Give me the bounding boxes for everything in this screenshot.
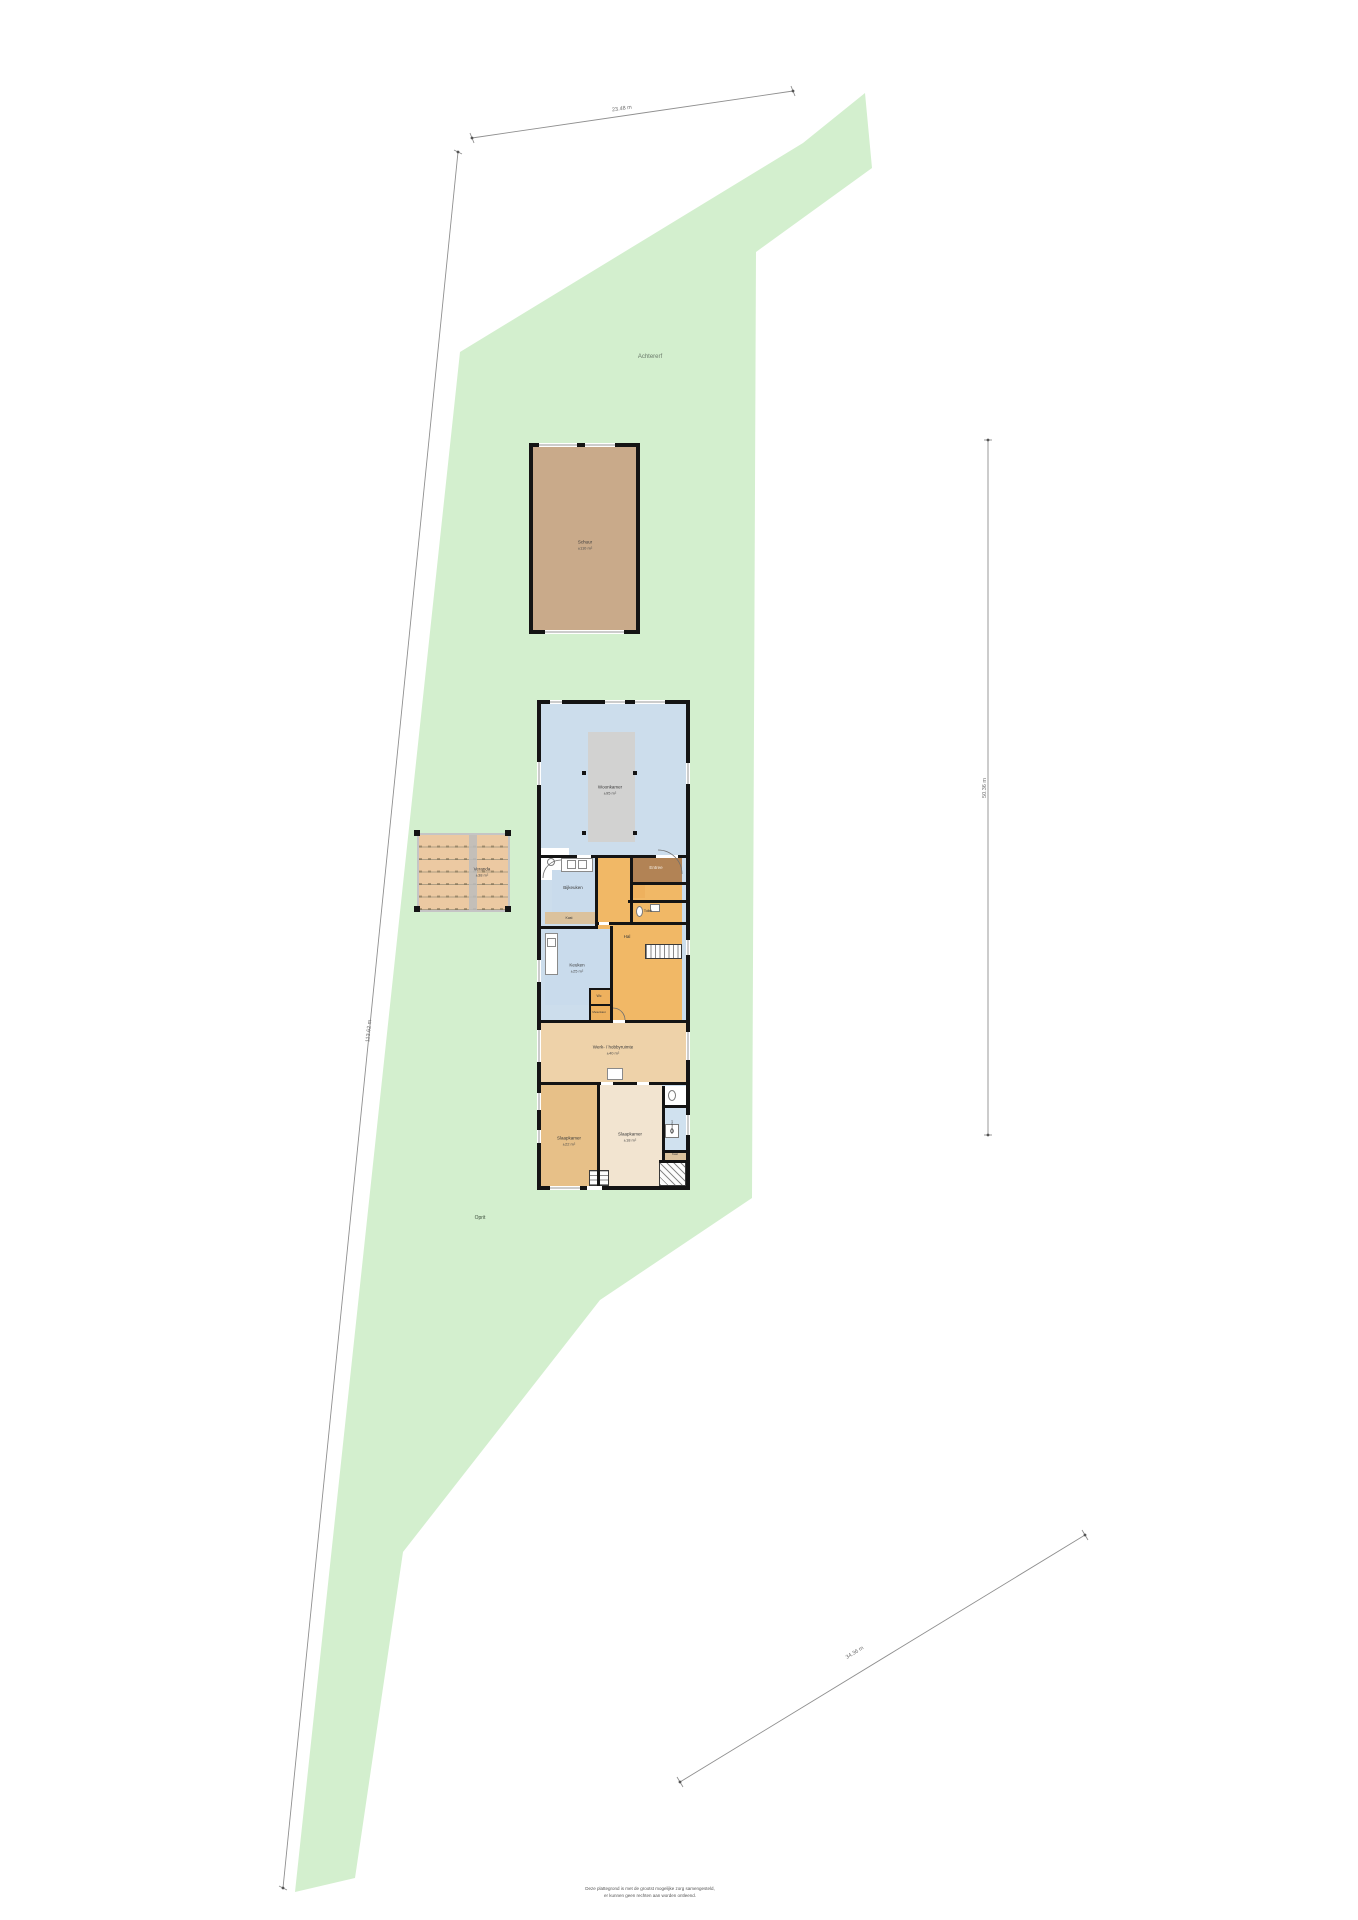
barn-window bbox=[585, 443, 615, 447]
label-slaapkamer1: Slaapkamer ±22 m² bbox=[557, 1136, 581, 1147]
label-keuken: Keuken ±25 m² bbox=[569, 963, 584, 974]
barn-area: ±110 m² bbox=[578, 545, 592, 550]
label-woonkamer: Woonkamer ±95 m² bbox=[598, 785, 622, 796]
deck-post bbox=[505, 906, 511, 912]
label-entree: Entree bbox=[649, 865, 662, 871]
barn-wall-left bbox=[529, 443, 533, 634]
label-bijkeuken: Bijkeuken bbox=[563, 885, 583, 891]
house: Woonkamer ±95 m² Bijkeuken Kast Entree T… bbox=[537, 700, 690, 1190]
veranda-area: ±38 m² bbox=[474, 872, 491, 877]
dimension-label-right: 50.36 m bbox=[982, 778, 988, 798]
dimension-line-bottom-right bbox=[677, 1530, 1088, 1787]
barn-window bbox=[539, 443, 577, 447]
veranda-deck: Veranda ±38 m² bbox=[417, 833, 510, 912]
deck-plank-dashes bbox=[419, 835, 508, 910]
site-plan-canvas: 23.48 m 50.36 m 113.62 m 34.36 m Achtere… bbox=[0, 0, 1358, 1920]
label-hal: Hal bbox=[624, 934, 631, 940]
label-meterkast: Meterkast bbox=[592, 1011, 605, 1015]
dimension-line-top bbox=[470, 86, 795, 143]
label-kast2: Kast bbox=[672, 1153, 678, 1157]
label-werkruimte: Werk- / hobbyruimte ±40 m² bbox=[593, 1045, 633, 1056]
disclaimer-line1: Deze plattegrond is met de grootst mogel… bbox=[585, 1886, 715, 1893]
barn: Schuur ±110 m² bbox=[529, 443, 640, 634]
label-slaapkamer2: Slaapkamer ±18 m² bbox=[618, 1132, 642, 1143]
label-kast1: Kast bbox=[565, 916, 572, 920]
barn-wall-right bbox=[636, 443, 640, 634]
deck-post bbox=[414, 906, 420, 912]
barn-door-opening bbox=[545, 630, 624, 634]
disclaimer: Deze plattegrond is met de grootst mogel… bbox=[585, 1886, 715, 1900]
label-wc: Wc bbox=[596, 994, 601, 998]
barn-name: Schuur bbox=[578, 540, 592, 545]
back-yard-label: Achtererf bbox=[638, 354, 662, 360]
label-badkamer: Badkamer bbox=[671, 1120, 675, 1134]
label-toilet: Toilet bbox=[644, 909, 652, 913]
veranda-label: Veranda ±38 m² bbox=[474, 867, 491, 878]
deck-post bbox=[505, 830, 511, 836]
deck-post bbox=[414, 830, 420, 836]
veranda-name: Veranda bbox=[474, 867, 491, 872]
barn-wall-tick bbox=[617, 443, 621, 447]
disclaimer-line2: er kunnen geen rechten aan worden ontlee… bbox=[585, 1893, 715, 1900]
driveway-label: Oprit bbox=[475, 1215, 486, 1221]
barn-label: Schuur ±110 m² bbox=[578, 540, 592, 551]
door-arcs bbox=[537, 700, 690, 1190]
